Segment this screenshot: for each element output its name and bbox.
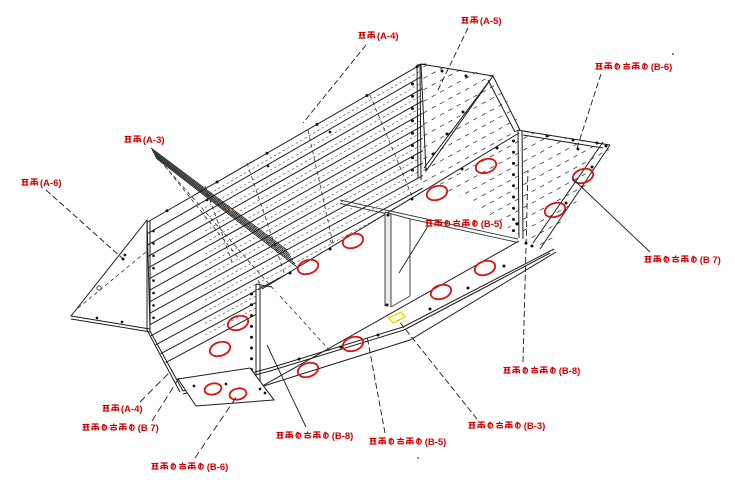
svg-text:(A-6): (A-6): [40, 178, 62, 189]
svg-text:(A-5): (A-5): [480, 16, 502, 27]
svg-text:(B-5): (B-5): [481, 219, 503, 230]
svg-text:(B-6): (B-6): [207, 462, 229, 473]
svg-text:(B-8): (B-8): [559, 366, 581, 377]
svg-text:(B 7): (B 7): [700, 255, 721, 266]
svg-text:(B-8): (B-8): [332, 431, 354, 442]
svg-text:(A-4): (A-4): [121, 404, 143, 415]
svg-text:(B 7): (B 7): [138, 423, 159, 434]
svg-text:(B-5): (B-5): [425, 437, 447, 448]
svg-text:(A-4): (A-4): [377, 31, 399, 42]
svg-text:(B-3): (B-3): [524, 421, 546, 432]
svg-text:(A-3): (A-3): [143, 135, 165, 146]
svg-text:(B-6): (B-6): [651, 62, 673, 73]
